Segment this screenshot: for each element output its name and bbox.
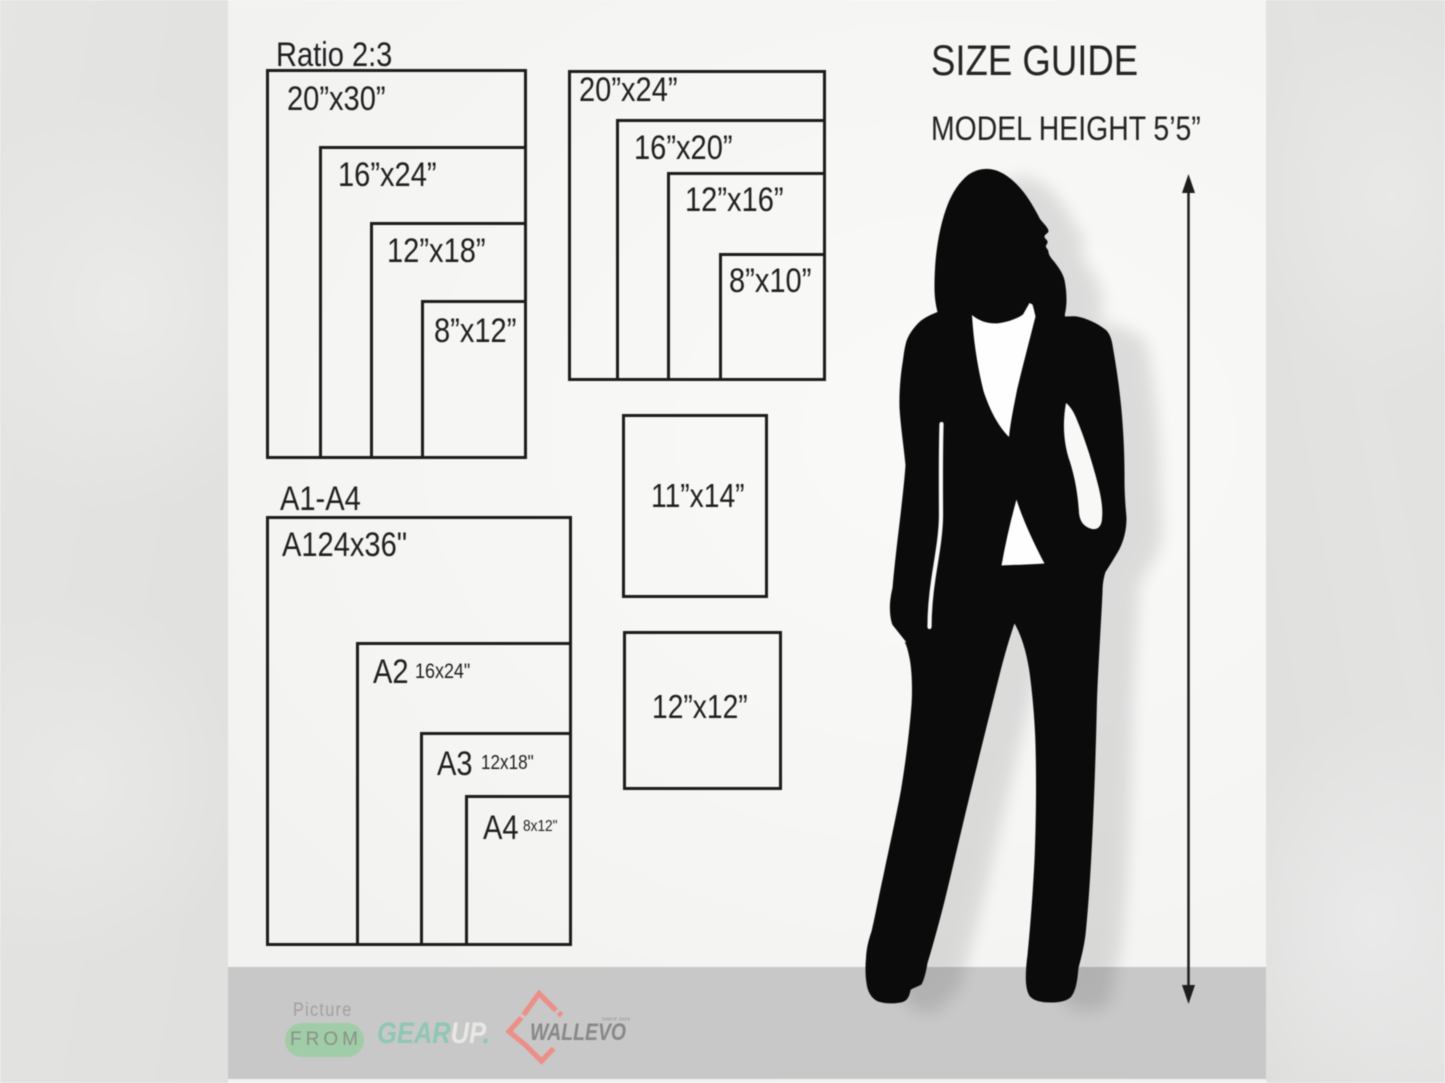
svg-text:WALLEVO: WALLEVO xyxy=(530,1019,626,1046)
